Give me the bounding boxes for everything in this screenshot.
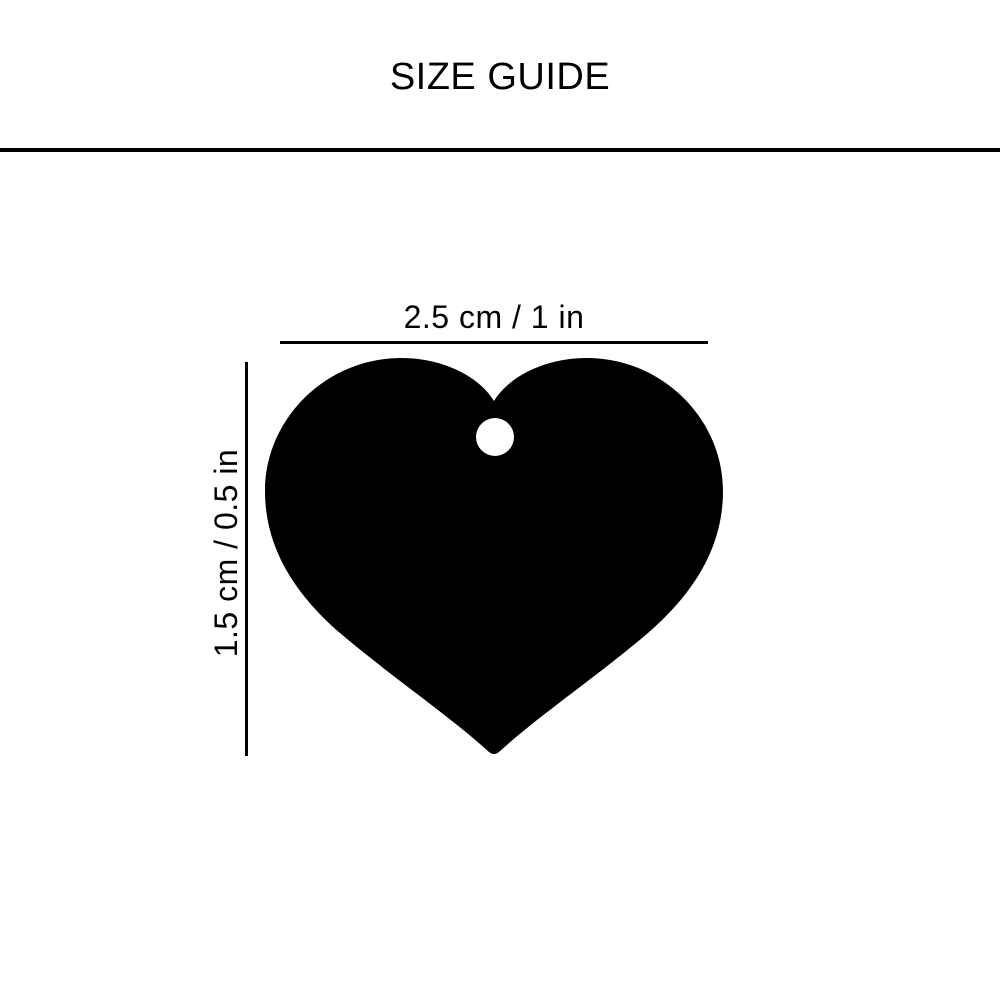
heart-silhouette-with-hole	[265, 358, 723, 754]
size-guide-page: SIZE GUIDE 2.5 cm / 1 in 1.5 cm / 0.5 in	[0, 0, 1000, 1000]
size-diagram: 2.5 cm / 1 in 1.5 cm / 0.5 in	[0, 0, 1000, 1000]
height-dimension-line	[245, 362, 248, 756]
heart-tag-shape	[265, 358, 723, 756]
width-dimension-label: 2.5 cm / 1 in	[280, 299, 708, 335]
height-dimension-label: 1.5 cm / 0.5 in	[208, 333, 244, 773]
width-dimension-line	[280, 341, 708, 344]
